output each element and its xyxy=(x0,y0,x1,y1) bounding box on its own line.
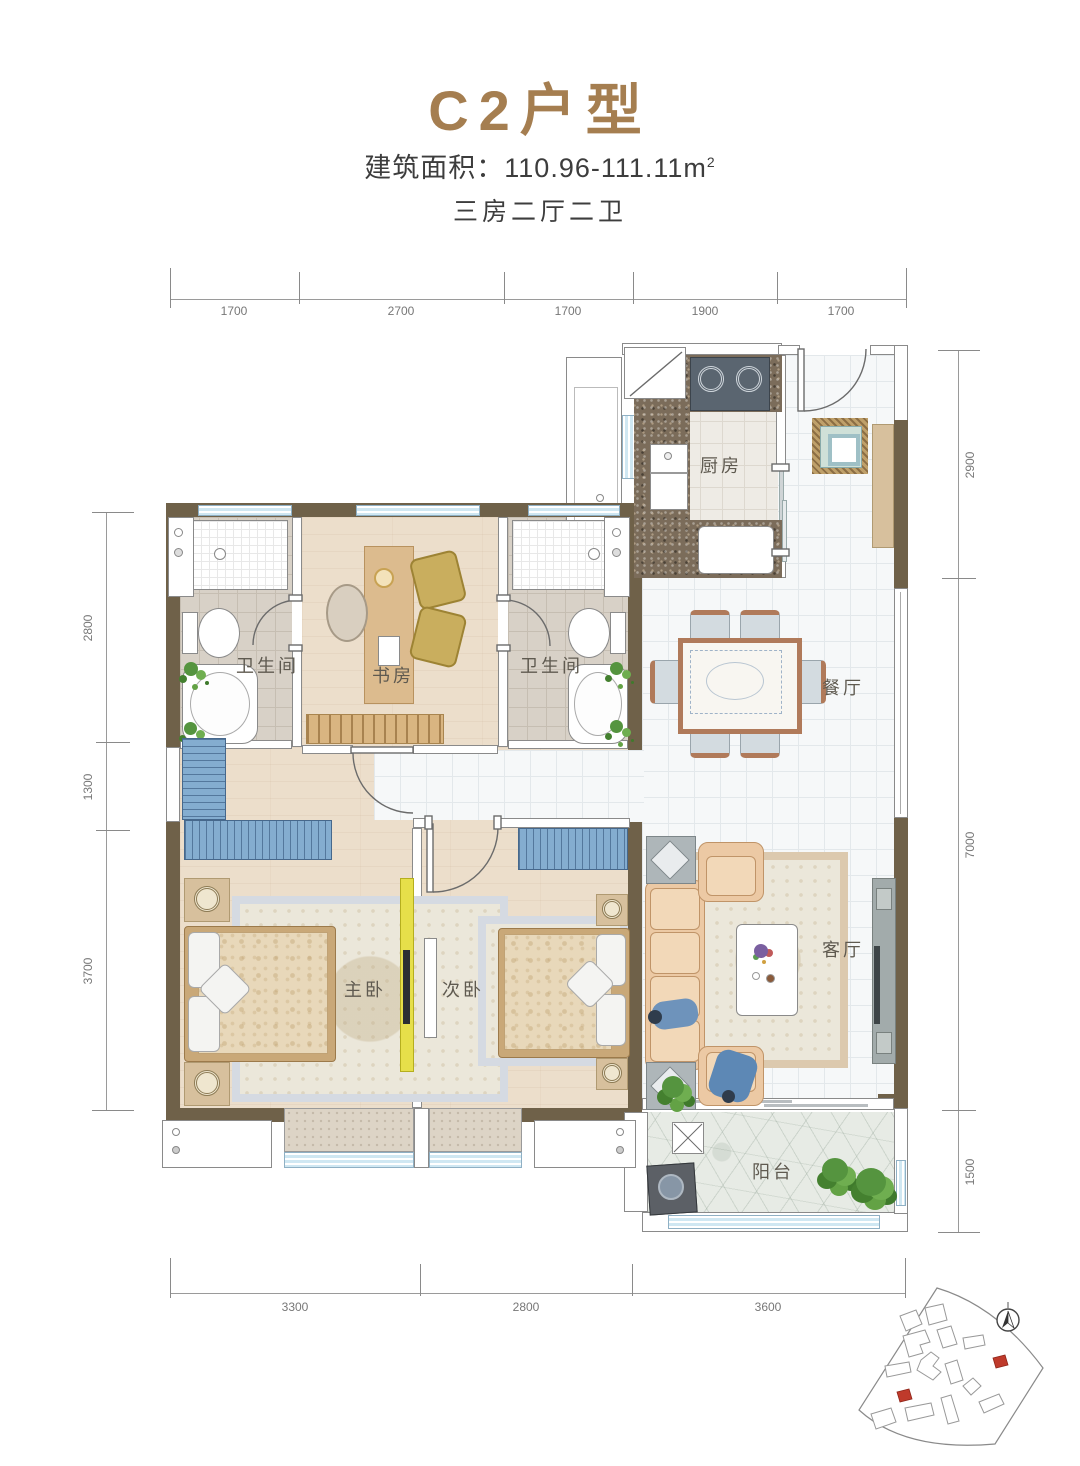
floorplan-page: C2户型 建筑面积：110.96-111.11m2 三房二厅二卫 1700 27… xyxy=(0,0,1080,1466)
north-compass-icon xyxy=(997,1302,1019,1331)
door-swing-overlay xyxy=(0,0,1080,1466)
site-map xyxy=(845,1278,1075,1466)
